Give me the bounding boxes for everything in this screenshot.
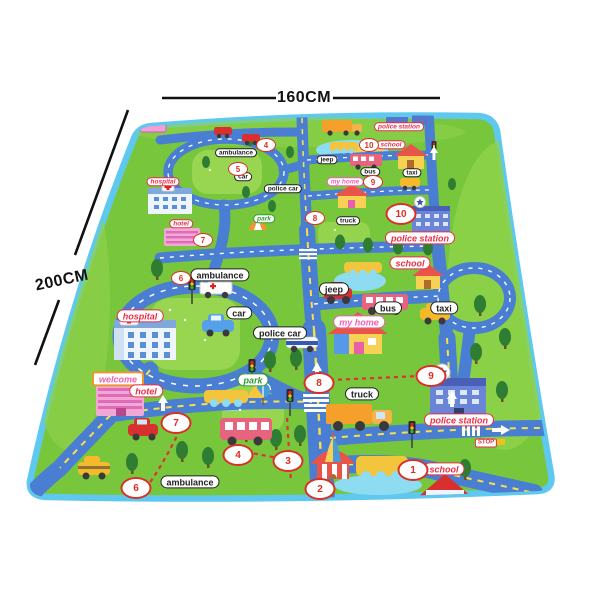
mat-label-my-home: my home (333, 315, 385, 328)
mat-label-school: school (389, 256, 430, 269)
mat-label-school: school (377, 140, 406, 149)
mat-label-police-car: police car (253, 326, 307, 339)
route-number-3: 3 (273, 450, 304, 472)
route-number-7: 7 (161, 412, 192, 434)
product-photo-scene: 160CM 200CM police stationschoolambulanc… (0, 0, 600, 600)
mat-label-car: car (226, 306, 252, 319)
mat-label-police-station: police station (424, 413, 494, 426)
mat-label-hospital: hospital (117, 309, 164, 322)
mat-label-ambulance: ambulance (160, 475, 219, 488)
route-number-9: 9 (363, 175, 383, 189)
route-number-7: 7 (193, 233, 213, 247)
mat-label-hotel: hotel (129, 384, 163, 397)
route-number-5: 5 (228, 162, 248, 176)
route-number-4: 4 (223, 444, 254, 466)
mat-label-jeep: jeep (316, 155, 337, 164)
mat-label-my-home: my home (327, 177, 364, 186)
mat-label-park: park (237, 373, 268, 386)
route-number-6: 6 (171, 271, 191, 285)
route-number-10: 10 (386, 203, 417, 225)
mat-label-ambulance: ambulance (215, 148, 257, 157)
route-number-9: 9 (416, 365, 447, 387)
mat-label-jeep: jeep (319, 282, 349, 295)
route-number-10: 10 (359, 138, 379, 152)
mat-label-park: park (253, 214, 275, 223)
mat-labels-overlay: police stationschoolambulancejeepbustaxi… (0, 0, 600, 600)
route-number-2: 2 (305, 478, 336, 500)
mat-label-police-car: police car (264, 184, 302, 193)
route-number-8: 8 (305, 211, 325, 225)
mat-label-bus: bus (374, 301, 402, 314)
mat-label-hotel: hotel (169, 219, 193, 228)
mat-label-taxi: taxi (402, 168, 421, 177)
mat-label-truck: truck (336, 216, 360, 225)
mat-label-stop: STOP (475, 439, 497, 448)
mat-label-police-station: police station (385, 231, 455, 244)
route-number-4: 4 (256, 138, 276, 152)
mat-label-school: school (423, 462, 464, 475)
route-number-6: 6 (121, 477, 152, 499)
route-number-8: 8 (304, 372, 335, 394)
route-number-1: 1 (398, 459, 429, 481)
mat-label-truck: truck (345, 387, 379, 400)
mat-label-hospital: hospital (147, 177, 180, 186)
mat-label-taxi: taxi (430, 301, 458, 314)
mat-label-police-station: police station (374, 122, 424, 131)
mat-label-ambulance: ambulance (190, 268, 249, 281)
